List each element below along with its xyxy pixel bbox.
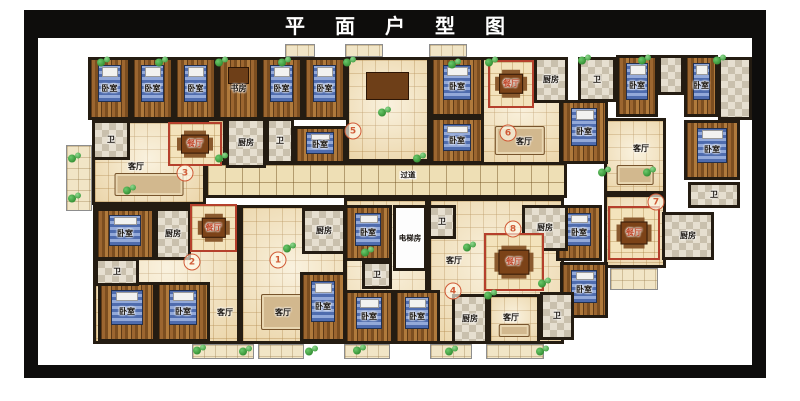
unit-number-8: 8: [505, 221, 522, 238]
room-label: 卫: [438, 218, 446, 226]
room-label: 客厅: [633, 145, 649, 153]
room-label: 餐厅: [506, 258, 522, 266]
plant-icon: [484, 290, 498, 301]
balcony: [344, 344, 390, 359]
room-label: 卫: [373, 271, 381, 279]
desk-furniture: [366, 72, 409, 100]
room-label: 卫: [276, 137, 284, 145]
room-label: 客厅: [275, 309, 291, 317]
plant-icon: [538, 278, 552, 289]
unit-number-7: 7: [648, 194, 665, 211]
kitchen: 厨房: [302, 208, 346, 254]
unit-number-1: 1: [270, 252, 287, 269]
bathroom: 卫: [92, 120, 130, 160]
room-label: 卧室: [361, 313, 377, 321]
room-label: 客厅: [516, 138, 532, 146]
plant-icon: [97, 57, 111, 68]
bathroom: 卫: [266, 118, 294, 164]
plant-icon: [448, 59, 462, 70]
room-label: 卧室: [571, 229, 587, 237]
unit-number-6: 6: [500, 125, 517, 142]
bathroom: 卫: [540, 292, 574, 340]
room-label: 客厅: [503, 314, 519, 322]
bathroom: [718, 57, 752, 120]
bedroom: 卧室: [430, 117, 484, 164]
room-label: 客厅: [446, 257, 462, 265]
room-label: 卧室: [188, 85, 204, 93]
bedroom: 卧室: [98, 282, 156, 342]
plant-icon: [215, 153, 229, 164]
bathroom: 卫: [688, 182, 740, 208]
plant-icon: [193, 345, 207, 356]
room-label: 餐厅: [503, 80, 519, 88]
room-label: 卧室: [312, 141, 328, 149]
plant-icon: [463, 242, 477, 253]
room-label: 卧室: [449, 83, 465, 91]
room-label: 卧室: [315, 303, 331, 311]
room-label: 厨房: [165, 230, 181, 238]
dining-room: 餐厅: [608, 206, 660, 260]
frame-left: [24, 38, 38, 365]
floor-plan: 客厅客厅客厅客厅客厅客厅客厅过道卧室卧室卧室书房卧室卧室卧室卧室卧室卧室卧室卧室…: [0, 0, 800, 401]
bedroom: 卧室: [300, 272, 346, 342]
bedroom: 卧室: [294, 126, 346, 164]
plant-icon: [713, 55, 727, 66]
bedroom: 卧室: [560, 100, 608, 164]
plant-icon: [343, 57, 357, 68]
plant-icon: [445, 346, 459, 357]
balcony: [429, 44, 467, 57]
plant-icon: [215, 57, 229, 68]
sofa-furniture: [499, 324, 530, 337]
room-label: 餐厅: [187, 140, 203, 148]
balcony: [345, 44, 383, 57]
kitchen: 厨房: [534, 57, 568, 103]
room-label: 卧室: [274, 85, 290, 93]
plant-icon: [283, 243, 297, 254]
bedroom: 卧室: [156, 282, 210, 342]
floor-plan-image: 客厅客厅客厅客厅客厅客厅客厅过道卧室卧室卧室书房卧室卧室卧室卧室卧室卧室卧室卧室…: [0, 0, 800, 401]
room-label: 卧室: [576, 128, 592, 136]
room-label: 卫: [107, 136, 115, 144]
plant-icon: [278, 57, 292, 68]
bathroom: 卫: [362, 261, 392, 289]
bedroom: 卧室: [684, 120, 740, 180]
room-label: 卧室: [693, 82, 709, 90]
plant-icon: [378, 107, 392, 118]
bedroom: 卧室: [174, 57, 217, 120]
room-label: 厨房: [462, 315, 478, 323]
kitchen: 厨房: [226, 118, 266, 168]
room-label: 电梯房: [398, 234, 423, 242]
bedroom: 卧室: [95, 208, 155, 260]
room-label: 餐厅: [626, 229, 642, 237]
room-label: 过道: [400, 171, 417, 179]
room-label: 卧室: [576, 286, 592, 294]
plant-icon: [643, 167, 657, 178]
kitchen: 厨房: [155, 208, 191, 260]
balcony: [258, 344, 304, 359]
frame-top: 平面户型图: [24, 10, 766, 38]
room-label: 餐厅: [206, 224, 222, 232]
room-label: 卧室: [145, 85, 161, 93]
room-label: 卧室: [102, 85, 118, 93]
balcony: [285, 44, 315, 57]
elevator-room: 电梯房: [393, 205, 427, 271]
bathroom: 卫: [428, 205, 456, 239]
room-label: 卧室: [449, 137, 465, 145]
room-label: 客厅: [217, 309, 233, 317]
plant-icon: [361, 247, 375, 258]
unit-number-3: 3: [177, 165, 194, 182]
room-label: 卫: [710, 191, 718, 199]
room-label: 厨房: [543, 76, 559, 84]
dining-room: 餐厅: [484, 233, 544, 291]
room-label: 卫: [553, 312, 561, 320]
room-label: 客厅: [128, 163, 144, 171]
plant-icon: [536, 346, 550, 357]
balcony: [610, 268, 658, 290]
plant-icon: [413, 153, 427, 164]
plant-icon: [305, 346, 319, 357]
room-label: 卧室: [360, 229, 376, 237]
plant-icon: [68, 153, 82, 164]
kitchen: 厨房: [662, 212, 714, 260]
unit-number-4: 4: [445, 283, 462, 300]
bedroom: 卧室: [303, 57, 346, 120]
dining-room: 餐厅: [168, 122, 222, 166]
bathroom: 卫: [95, 258, 139, 286]
plant-icon: [485, 57, 499, 68]
plant-icon: [239, 346, 253, 357]
room-label: 卫: [593, 76, 601, 84]
room-label: 卫: [113, 268, 121, 276]
room-label: 卧室: [117, 230, 133, 238]
dining-room: 餐厅: [190, 204, 237, 252]
room-label: 卧室: [317, 85, 333, 93]
room-label: 厨房: [238, 139, 254, 147]
room-label: 书房: [231, 85, 247, 93]
room-label: 卧室: [409, 313, 425, 321]
room-label: 厨房: [537, 224, 553, 232]
plant-icon: [123, 185, 137, 196]
desk-furniture: [228, 67, 249, 84]
closet: [658, 55, 684, 95]
room-label: 卧室: [175, 308, 191, 316]
plant-icon: [68, 193, 82, 204]
unit-number-2: 2: [184, 254, 201, 271]
living-room-unit4: 客厅: [488, 294, 540, 344]
room-label: 厨房: [680, 232, 696, 240]
page-title: 平面户型图: [255, 10, 535, 39]
room-label: 卧室: [119, 308, 135, 316]
room-label: 厨房: [316, 227, 332, 235]
plant-icon: [578, 55, 592, 66]
plant-icon: [598, 167, 612, 178]
frame-bottom: [24, 365, 766, 378]
kitchen: 厨房: [452, 294, 488, 344]
bedroom: 卧室: [394, 290, 440, 344]
frame-right: [752, 38, 766, 365]
plant-icon: [638, 55, 652, 66]
living-room-unit7: 客厅: [604, 118, 666, 194]
bedroom: 卧室: [344, 290, 394, 344]
plant-icon: [155, 57, 169, 68]
room-label: 卧室: [704, 146, 720, 154]
unit-number-5: 5: [345, 123, 362, 140]
plant-icon: [353, 345, 367, 356]
room-label: 卧室: [629, 82, 645, 90]
